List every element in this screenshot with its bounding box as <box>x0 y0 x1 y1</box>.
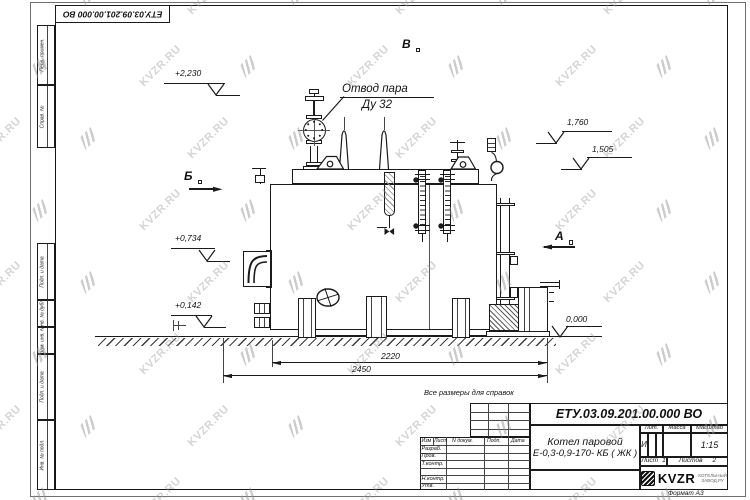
front-valve-body <box>255 175 265 183</box>
lit-value-cell: И <box>640 433 648 457</box>
rotbox: Перв. примен. <box>38 26 47 84</box>
txt: Лит. <box>645 426 659 432</box>
v <box>457 299 458 337</box>
scale-value: 1:15 <box>701 441 719 450</box>
pipe-flange <box>496 203 515 206</box>
logo-cell: KVZR КОТЕЛЬНЫЙ ЗАВОД.РУ <box>640 466 728 490</box>
txt: 1 <box>662 458 666 465</box>
dimension-line-2450 <box>223 375 547 376</box>
safety-valve-stem <box>344 117 345 130</box>
valve-upper-flange <box>306 115 322 120</box>
col-izm: Изм <box>422 439 432 444</box>
h <box>587 157 632 158</box>
margin-stamp: Инв. № дубл. <box>37 300 55 327</box>
margin-stamp: Подп. и дата <box>37 243 55 300</box>
pipe-nub <box>510 287 518 298</box>
company-cell <box>530 470 640 490</box>
mass-header: Масса <box>663 425 691 433</box>
txt: Лист <box>641 458 658 465</box>
steam-outlet-label: Отвод пара <box>342 84 408 96</box>
product-name-line1: Котел паровой <box>547 437 622 448</box>
gauge-glass <box>384 172 395 216</box>
v <box>264 304 265 313</box>
v <box>465 299 466 337</box>
h <box>549 292 554 293</box>
h <box>164 83 225 84</box>
gauge-valve-handle <box>377 227 387 228</box>
h <box>470 429 530 430</box>
support-left <box>298 298 316 338</box>
rotbox: Подп. и дата <box>38 355 47 419</box>
front-stub-pipe <box>254 303 270 314</box>
support-right <box>452 298 470 338</box>
drawing-sheet: ЕТУ.03.09.201.00.000 ВО Перв. примен. Сп… <box>0 0 750 500</box>
h <box>204 327 226 328</box>
top-valve-stem <box>457 140 458 169</box>
margin-stamp-label: Взам. инв. № <box>40 325 46 356</box>
steam-outlet-dn-label: Ду 32 <box>362 100 392 112</box>
elevation-right-mid: 1,505 <box>592 145 613 154</box>
watermark-text: KVZR.RU <box>0 0 24 17</box>
ext-line <box>547 338 548 383</box>
dimension-2220: 2220 <box>381 352 400 361</box>
lit-header: Лит. <box>640 425 663 433</box>
front-stub-pipe <box>254 317 270 328</box>
v <box>259 304 260 313</box>
h <box>420 453 530 454</box>
product-name-cell: Котел паровой Е-0,3-0,9-170- КБ ( ЖК ) <box>530 425 640 470</box>
sheets-total-cell: Листов 2 <box>667 457 728 466</box>
gauge-glass-stem <box>389 216 390 228</box>
col-data: Дата <box>511 439 525 444</box>
v <box>524 288 525 333</box>
safety-valve-stem <box>384 117 385 130</box>
top-valve-handle <box>450 142 465 143</box>
elevation-top: +2,230 <box>175 69 201 78</box>
h <box>440 179 455 180</box>
h <box>415 230 430 231</box>
kvzr-logo-text: KVZR <box>658 471 695 486</box>
h <box>549 301 554 302</box>
margin-stamp: Подп. и дата <box>37 354 55 420</box>
cell <box>648 433 656 457</box>
cname: Котел паровой Е-0,3-0,9-170- КБ ( ЖК ) <box>531 426 639 469</box>
v <box>529 288 530 333</box>
h <box>420 483 530 484</box>
support-middle <box>366 296 387 338</box>
col-ndocum: N докум. <box>452 439 473 444</box>
title-doc-number: ЕТУ.03.09.201.00.000 ВО <box>556 408 702 421</box>
reference-note: Все размеры для справок <box>424 389 514 397</box>
section-label-a: А <box>555 230 564 242</box>
v <box>264 318 265 327</box>
span: ЗАВОД.РУ <box>698 478 727 484</box>
row-prov: Пров. <box>422 454 437 460</box>
pump-housing <box>518 287 548 334</box>
ground-hatching <box>98 338 556 346</box>
h <box>561 169 582 170</box>
watermark-text: KVZR.RU <box>0 403 24 449</box>
h <box>415 179 430 180</box>
rotbox: Инв. № дубл. <box>38 301 47 326</box>
v <box>303 299 304 337</box>
h <box>415 225 430 226</box>
kvzr-logo-icon <box>641 471 655 486</box>
format-label: Формат А3 <box>668 491 704 498</box>
dimension-2450: 2450 <box>352 365 371 374</box>
row-tkontr: Т.контр. <box>422 462 444 468</box>
pipe-flange <box>496 252 515 255</box>
v <box>259 318 260 327</box>
section-label-v: В <box>402 38 411 50</box>
pump-base <box>486 331 550 337</box>
h <box>420 468 530 469</box>
corner-stamp: ЕТУ.03.09.201.00.000 ВО <box>55 5 170 23</box>
pump-outlet-flange <box>559 280 560 289</box>
h <box>207 261 230 262</box>
h <box>488 143 495 144</box>
view-symbol <box>569 240 574 245</box>
txt: 2 <box>713 458 717 465</box>
h <box>440 230 455 231</box>
valve-top-nut <box>309 89 319 94</box>
pipe-nub <box>510 256 518 265</box>
h <box>470 420 530 421</box>
body-seam-line <box>429 185 430 329</box>
front-elbow-box <box>243 251 271 287</box>
span: КОТЕЛЬНЫЙ ЗАВОД.РУ <box>698 473 727 484</box>
pump-motor <box>489 304 519 331</box>
dimension-line-2220 <box>272 362 547 363</box>
elevation-left-mid: +0,734 <box>175 234 201 243</box>
h <box>171 248 215 249</box>
margin-stamp-label: Справ. № <box>40 105 46 128</box>
rot180: ЕТУ.03.09.201.00.000 ВО <box>56 6 169 22</box>
rotbox: Справ. № <box>38 86 47 147</box>
h <box>536 143 557 144</box>
elevation-right-upper: 1,760 <box>567 118 588 127</box>
elevation-left-low: +0,142 <box>175 301 201 310</box>
col-list: Лист <box>434 439 447 444</box>
h <box>440 174 455 175</box>
row-utv: Утв. <box>422 484 435 490</box>
row-razrab: Разраб. <box>422 447 442 453</box>
txt: Масштаб <box>696 426 723 432</box>
rotbox: Инв. № подл. <box>38 421 47 489</box>
watermark-text: KVZR.RU <box>0 259 24 305</box>
rotbox: Взам. инв. № <box>38 328 47 353</box>
title-doc-number-cell: ЕТУ.03.09.201.00.000 ВО <box>530 403 728 425</box>
h <box>415 174 430 175</box>
h <box>470 412 530 413</box>
v <box>311 299 312 337</box>
margin-stamp: Справ. № <box>37 85 55 148</box>
v <box>371 297 372 337</box>
row-nkontr: Н.контр. <box>422 477 445 483</box>
view-symbol <box>198 180 203 185</box>
section-arrow-b <box>189 188 215 189</box>
steam-outlet-flange <box>306 162 323 166</box>
margin-stamp-label: Подп. и дата <box>40 371 46 402</box>
drain-pipe <box>173 325 186 326</box>
product-name-line2: Е-0,3-0,9-170- КБ ( ЖК ) <box>533 449 637 459</box>
sheet-cell: Лист 1 <box>640 457 667 466</box>
v <box>447 234 448 242</box>
label-underline <box>340 97 434 98</box>
txt: Масса <box>668 426 685 432</box>
margin-stamp-label: Инв. № дубл. <box>40 298 46 329</box>
view-symbol <box>416 48 421 53</box>
top-valve-flange <box>451 159 464 162</box>
h <box>171 315 212 316</box>
scale-value-cell: 1:15 <box>691 433 728 457</box>
elevation-ground: 0,000 <box>566 315 587 324</box>
section-arrow-a <box>544 246 575 247</box>
corner-doc-number: ЕТУ.03.09.201.00.000 ВО <box>63 10 162 19</box>
margin-stamp: Инв. № подл. <box>37 420 55 490</box>
v <box>314 94 315 97</box>
pressure-gauge-fitting <box>487 138 496 152</box>
rungs <box>420 176 425 226</box>
mass-value-cell <box>663 433 691 457</box>
h <box>562 131 612 132</box>
pump-outlet-pipe <box>540 282 559 283</box>
cell <box>656 433 663 457</box>
margin-stamp-label: Инв. № подл. <box>40 439 46 470</box>
scale-header: Масштаб <box>691 425 728 433</box>
v <box>381 297 382 337</box>
v <box>422 234 423 242</box>
margin-stamp-label: Подп. и дата <box>40 256 46 287</box>
section-label-b: Б <box>184 170 193 182</box>
h <box>216 95 240 96</box>
txt: Листов <box>679 458 703 465</box>
margin-stamp: Перв. примен. <box>37 25 55 85</box>
top-valve-flange <box>451 150 464 153</box>
h <box>440 225 455 226</box>
lit-value: И <box>641 441 647 449</box>
watermark-text: KVZR.RU <box>0 115 24 161</box>
h <box>540 286 559 287</box>
h <box>488 147 495 148</box>
valve-handwheel <box>305 96 324 101</box>
steam-outlet-base-flange <box>303 166 325 170</box>
h <box>566 326 602 327</box>
col-podp: Подп. <box>487 439 501 444</box>
rotbox: Подп. и дата <box>38 244 47 299</box>
margin-stamp: Взам. инв. № <box>37 327 55 354</box>
rungs <box>445 176 450 226</box>
margin-stamp-label: Перв. примен. <box>40 38 46 71</box>
